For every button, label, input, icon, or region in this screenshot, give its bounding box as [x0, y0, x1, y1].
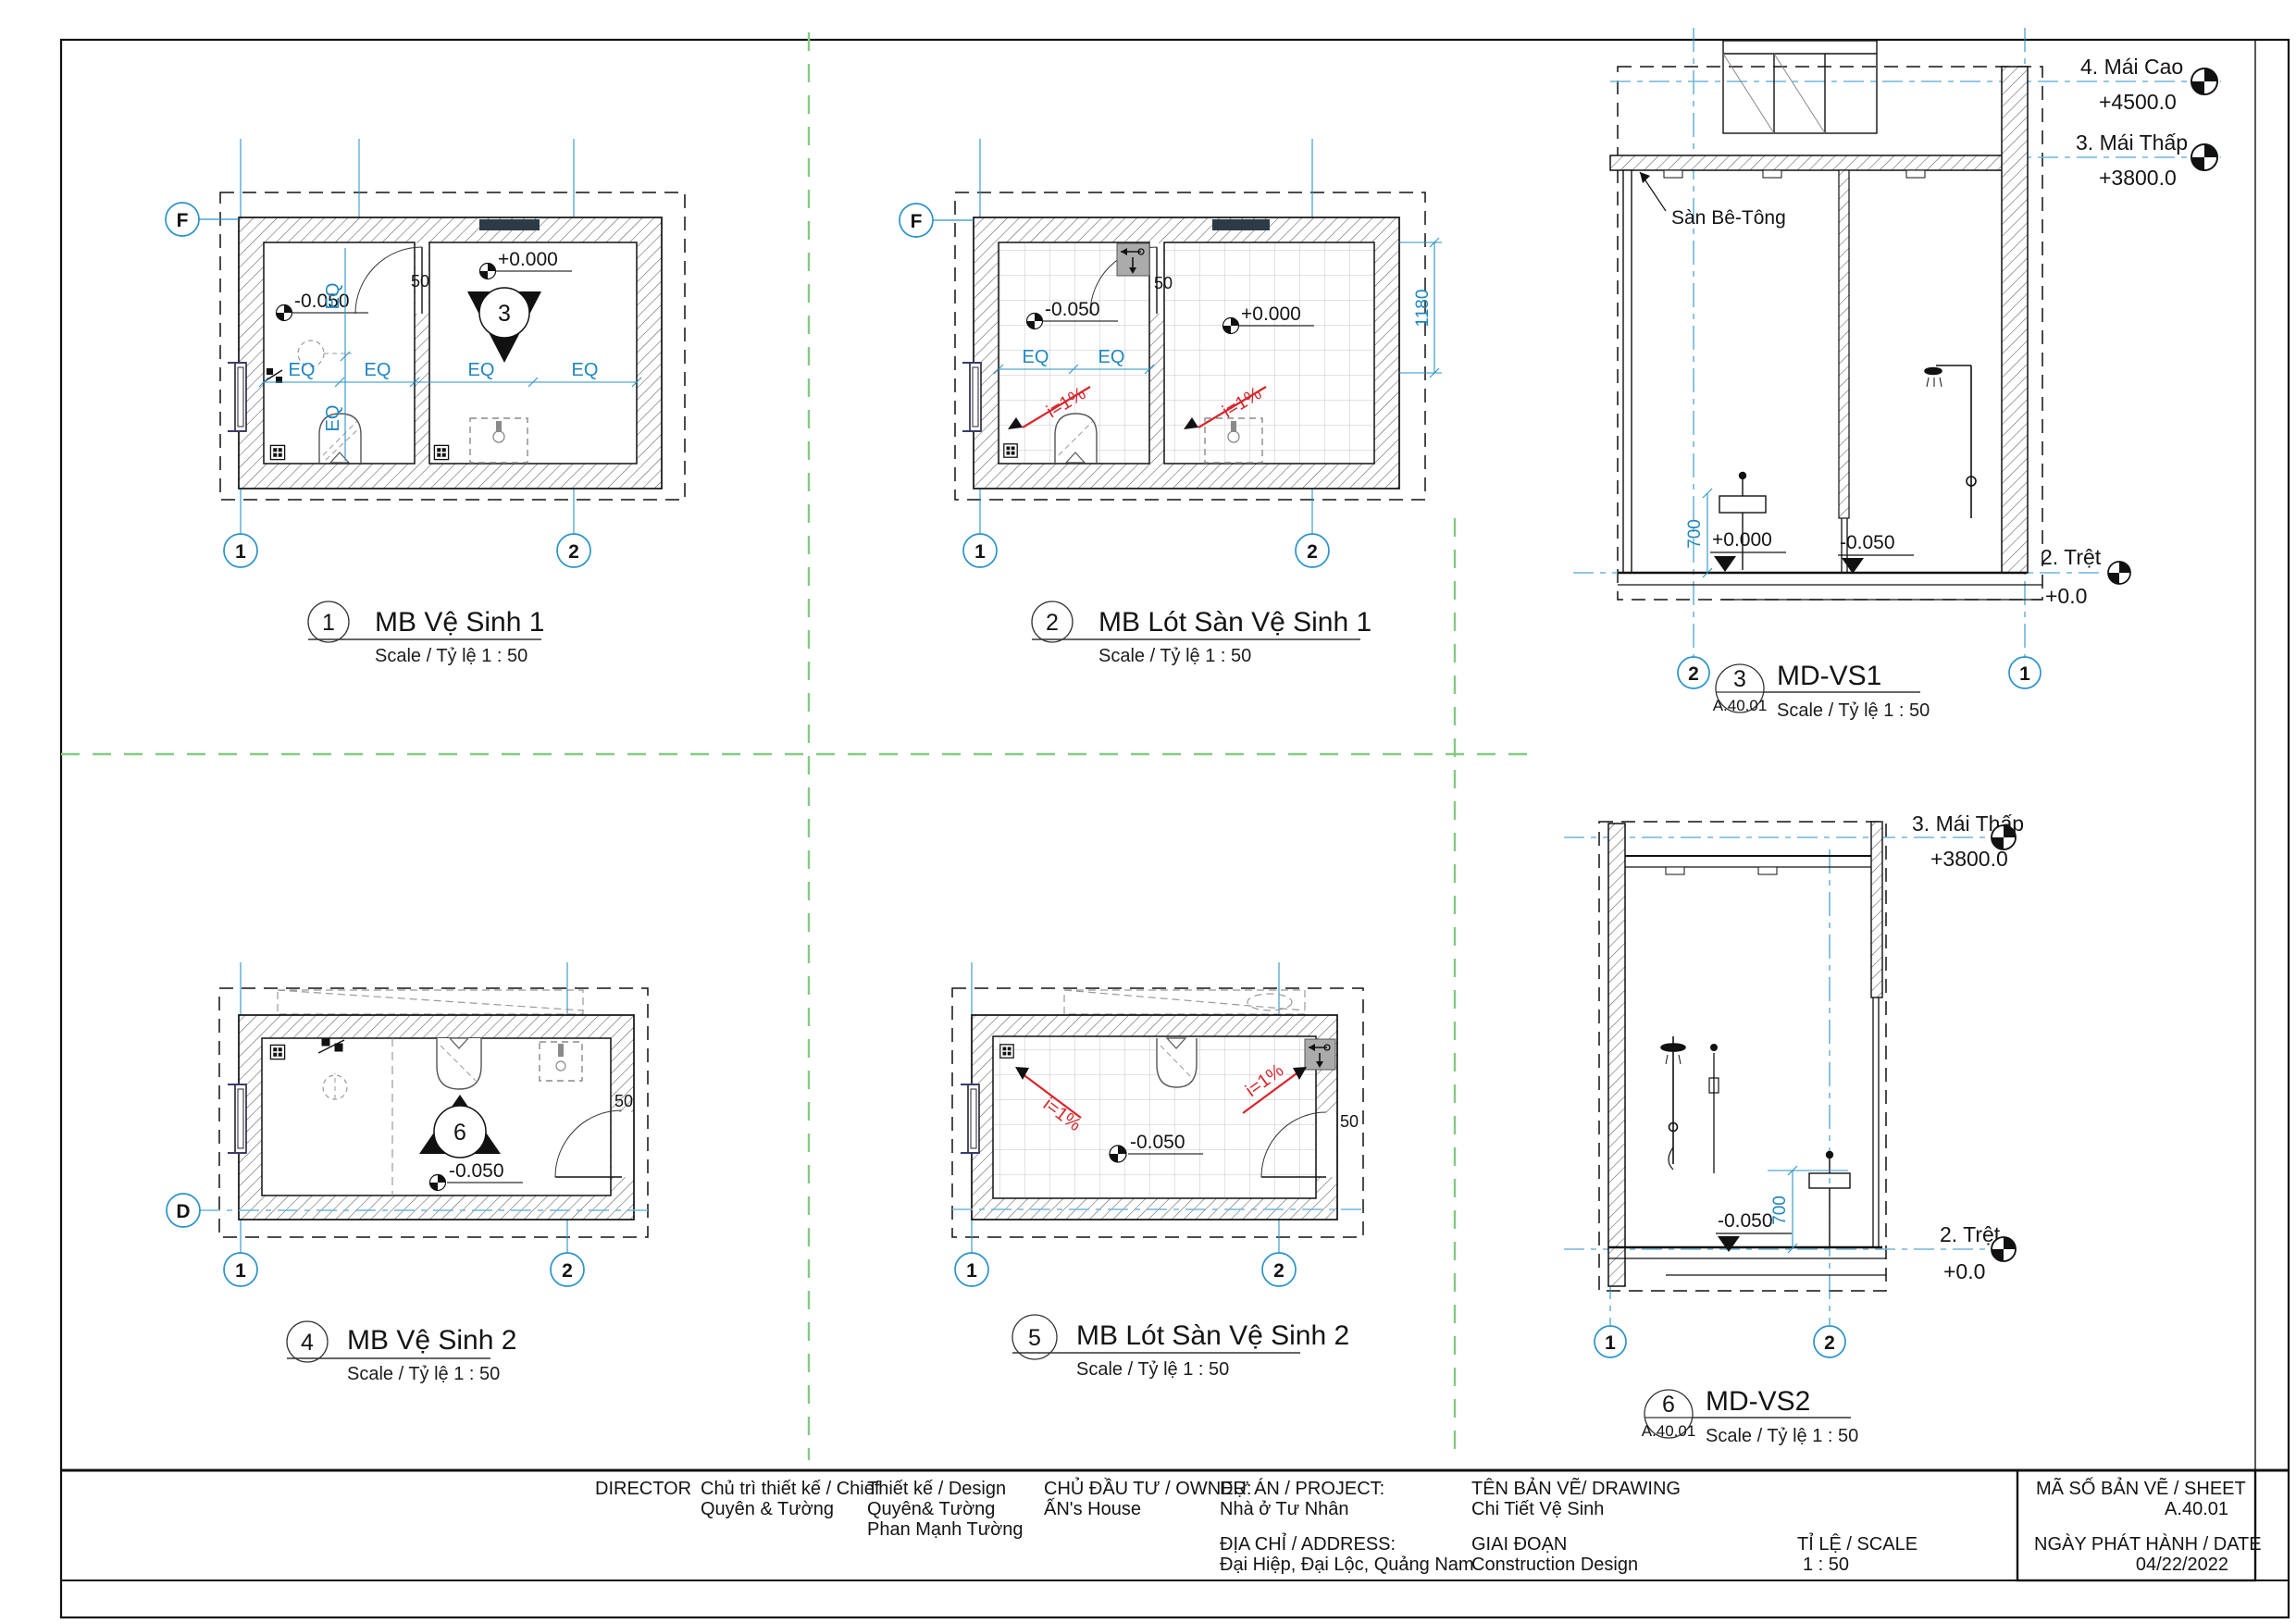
- spot-level: +0.000: [1712, 529, 1772, 551]
- view-section-md-vs2: -0.050 700 3. Mái Thấp +3800.0 2. Trệt +…: [1564, 811, 2024, 1446]
- view-title: MD-VS2: [1706, 1386, 1810, 1417]
- floor-drain-icon: [270, 1045, 284, 1059]
- floor-drain-icon: [1000, 1045, 1013, 1058]
- chief-label: Chủ trì thiết kế / Chief: [701, 1479, 880, 1499]
- window-icon: [961, 1084, 979, 1153]
- view-scale: Scale / Tỷ lệ 1 : 50: [375, 646, 527, 666]
- eq-label: EQ: [1098, 347, 1125, 367]
- grid-label: 2: [1273, 1260, 1285, 1282]
- spot-level-icon: [430, 1175, 446, 1191]
- wall-left: [1608, 824, 1625, 1286]
- concrete-slab: [1610, 155, 2024, 170]
- date-label: NGÀY PHÁT HÀNH / DATE: [2034, 1533, 2262, 1555]
- dim-50: 50: [411, 272, 429, 291]
- eq-label: EQ: [323, 283, 343, 310]
- washbasin-icon: [1719, 473, 1766, 571]
- date-value: 04/22/2022: [2136, 1555, 2228, 1575]
- shower-drain-box-icon: [1305, 1039, 1335, 1070]
- view-scale: Scale / Tỷ lệ 1 : 50: [347, 1364, 500, 1384]
- dim-700: 700: [1770, 1196, 1790, 1225]
- sheet-canvas: -0.050 +0.000 50 3 EQ EQ EQ EQ EQ EQ: [0, 0, 2296, 1623]
- spot-level: -0.050: [1045, 299, 1100, 320]
- grid-label: 1: [2019, 663, 2030, 685]
- director-label: DIRECTOR: [595, 1479, 691, 1499]
- window-icon: [228, 363, 246, 431]
- eq-label: EQ: [572, 360, 599, 380]
- floor-drain-icon: [1004, 444, 1017, 457]
- level-name: 4. Mái Cao: [2080, 55, 2183, 79]
- spot-level: +0.000: [498, 249, 558, 270]
- spot-triangle-icon: [1842, 558, 1864, 574]
- shower-drain-box-icon: [1117, 243, 1149, 276]
- shower-icon: [1661, 1036, 1685, 1170]
- project-name: Nhà ở Tư Nhân: [1220, 1499, 1349, 1519]
- dim-50: 50: [1154, 274, 1173, 292]
- level-elev: +3800.0: [2099, 166, 2177, 190]
- spot-level: -0.050: [449, 1160, 504, 1182]
- note-concrete-floor: Sàn Bê-Tông: [1671, 207, 1786, 229]
- counter-dashed: [278, 990, 583, 1014]
- view-title: MB Lót Sàn Vệ Sinh 2: [1076, 1320, 1349, 1351]
- wall-right: [2002, 67, 2028, 573]
- design-label: Thiết kế / Design: [867, 1479, 1006, 1499]
- view-scale: Scale / Tỷ lệ 1 : 50: [1098, 646, 1251, 666]
- floor-drain-icon: [270, 445, 284, 459]
- view-sheet-ref: A.40.01: [1713, 697, 1768, 714]
- datum-icon: [1992, 1237, 2016, 1261]
- cabinet-icon: [1723, 41, 1877, 133]
- view-section-md-vs1: Sàn Bê-Tông +0.000 -0.050 700: [1573, 28, 2221, 721]
- project-label: DỰ ÁN / PROJECT:: [1220, 1478, 1384, 1499]
- hand-shower-icon: [1709, 1045, 1719, 1174]
- eq-label: EQ: [365, 360, 391, 380]
- scale-label: TỈ LỆ / SCALE: [1797, 1533, 1917, 1555]
- room-bath: [429, 242, 637, 464]
- spot-level-icon: [480, 264, 496, 279]
- view-title: MB Vệ Sinh 1: [375, 607, 544, 638]
- view-plan-ve-sinh-1: -0.050 +0.000 50 3 EQ EQ EQ EQ EQ EQ: [166, 139, 685, 666]
- view-number: 1: [322, 610, 335, 636]
- drawing-label: TÊN BẢN VẼ/ DRAWING: [1471, 1477, 1681, 1499]
- section-cut-number: 3: [498, 301, 511, 327]
- sheet-label: MÃ SỐ BẢN VẼ / SHEET: [2036, 1477, 2246, 1499]
- grid-label: 1: [235, 1260, 246, 1282]
- design-name: Quyên& Tường: [867, 1499, 995, 1519]
- view-number: 4: [301, 1330, 314, 1356]
- spot-level-icon: [1110, 1146, 1126, 1162]
- grid-label: D: [176, 1201, 190, 1222]
- title-block: DIRECTOR Chủ trì thiết kế / Chief Quyên …: [595, 1477, 2262, 1575]
- toilet-icon: [1055, 414, 1097, 463]
- view-title: MD-VS1: [1777, 661, 1881, 691]
- dim-700: 700: [1685, 519, 1705, 549]
- level-elev: +0.0: [2045, 584, 2087, 608]
- view-sheet-ref: A.40.01: [1642, 1422, 1696, 1440]
- level-elev: +0.0: [1943, 1259, 1985, 1283]
- dim-1180: 1180: [1413, 290, 1433, 328]
- grid-label: 1: [974, 541, 986, 563]
- datum-icon: [2191, 144, 2217, 170]
- dim-50: 50: [614, 1092, 633, 1110]
- spot-level-icon: [1223, 318, 1239, 334]
- drawing-name: Chi Tiết Vệ Sinh: [1471, 1499, 1604, 1519]
- dim-50: 50: [1340, 1112, 1359, 1131]
- level-name: 3. Mái Thấp: [2076, 130, 2188, 155]
- grid-label: 1: [966, 1260, 977, 1282]
- grid-label: 2: [1688, 663, 1699, 685]
- view-number: 3: [1733, 666, 1746, 692]
- phase-label: GIAI ĐOẠN: [1471, 1534, 1567, 1555]
- owner-name: ẤN's House: [1044, 1498, 1141, 1519]
- window-icon: [228, 1084, 246, 1153]
- wall-vent-icon: [479, 219, 540, 230]
- grid-label: 2: [562, 1260, 573, 1282]
- spot-level: +0.000: [1241, 304, 1301, 325]
- spot-level-icon: [277, 305, 292, 321]
- view-lot-san-ve-sinh-2: i=1% i=1% -0.050 50 1 2 5 MB Lót Sàn Vệ …: [952, 962, 1363, 1380]
- floor-drain-icon: [434, 445, 448, 459]
- wall-left: [1623, 170, 1632, 573]
- door-opening: [1317, 1112, 1336, 1177]
- sheet-number: A.40.01: [2165, 1499, 2228, 1519]
- eq-label: EQ: [468, 360, 495, 380]
- spot-triangle-icon: [1714, 556, 1736, 572]
- datum-icon: [2108, 562, 2130, 584]
- grid-label: F: [911, 211, 923, 232]
- section-cut-number: 6: [453, 1120, 466, 1146]
- view-scale: Scale / Tỷ lệ 1 : 50: [1076, 1359, 1229, 1380]
- datum-icon: [1992, 825, 2016, 849]
- drawing-sheet: -0.050 +0.000 50 3 EQ EQ EQ EQ EQ EQ: [0, 0, 2296, 1623]
- level-name: 2. Trệt: [2041, 545, 2102, 569]
- grid-label: 2: [1307, 541, 1318, 563]
- design-name: Phan Mạnh Tường: [867, 1519, 1023, 1540]
- view-number: 5: [1028, 1325, 1041, 1351]
- scale-value: 1 : 50: [1803, 1555, 1849, 1575]
- spot-level: -0.050: [1130, 1132, 1185, 1153]
- partition-wall: [1839, 170, 1849, 518]
- grid-label: F: [177, 210, 189, 231]
- spot-level: -0.050: [1718, 1210, 1773, 1232]
- level-name: 2. Trệt: [1940, 1222, 2001, 1246]
- view-number: 6: [1662, 1392, 1675, 1418]
- toilet-icon: [437, 1038, 481, 1089]
- grid-label: 1: [235, 541, 246, 563]
- grid-label: 1: [1605, 1332, 1616, 1354]
- view-scale: Scale / Tỷ lệ 1 : 50: [1706, 1426, 1858, 1446]
- view-title: MB Vệ Sinh 2: [347, 1325, 516, 1356]
- phase-value: Construction Design: [1471, 1555, 1638, 1575]
- spot-level: -0.050: [1840, 532, 1895, 553]
- chief-name: Quyên & Tường: [701, 1499, 834, 1519]
- grid-label: 2: [1824, 1332, 1835, 1354]
- counter-dashed: [1064, 990, 1305, 1014]
- view-scale: Scale / Tỷ lệ 1 : 50: [1777, 700, 1930, 721]
- view-title: MB Lót Sàn Vệ Sinh 1: [1098, 607, 1371, 638]
- eq-label: EQ: [323, 405, 343, 432]
- window-icon: [962, 363, 981, 431]
- room-tiled: [993, 1036, 1316, 1198]
- wall-right-upper: [1871, 822, 1882, 997]
- view-lot-san-ve-sinh-1: i=1% i=1% -0.050 +0.000 50 EQ EQ 1180 F: [900, 139, 1442, 666]
- wall-vent-icon: [1212, 219, 1270, 230]
- view-number: 2: [1046, 610, 1059, 636]
- address-label: ĐỊA CHỈ / ADDRESS:: [1220, 1533, 1396, 1555]
- room-bath-tiled: [1164, 242, 1374, 464]
- address-value: Đại Hiệp, Đại Lộc, Quảng Nam: [1220, 1555, 1474, 1575]
- washbasin-icon: [1809, 1152, 1850, 1248]
- level-elev: +3800.0: [1930, 847, 2008, 871]
- view-plan-ve-sinh-2: 6 -0.050 50 D 1 2 4 MB Vệ Sinh 2 Scale /…: [167, 962, 648, 1384]
- spot-level-icon: [1027, 314, 1043, 329]
- toilet-icon: [1157, 1038, 1197, 1087]
- eq-label: EQ: [289, 360, 316, 380]
- grid-label: 2: [568, 541, 579, 563]
- datum-icon: [2191, 68, 2217, 94]
- viewport-boundary: [1618, 67, 2042, 600]
- eq-label: EQ: [1023, 347, 1049, 367]
- door-opening: [612, 1112, 633, 1177]
- level-elev: +4500.0: [2099, 90, 2177, 114]
- shower-icon: [1925, 365, 1976, 518]
